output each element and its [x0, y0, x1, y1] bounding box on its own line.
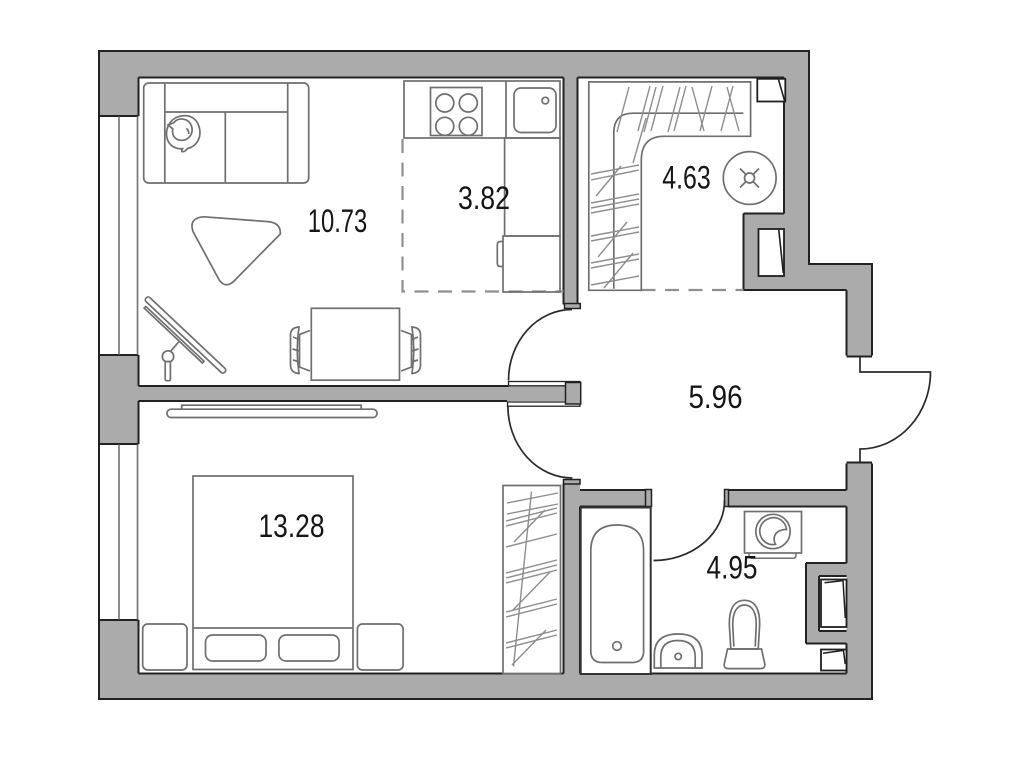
svg-text:4.63: 4.63: [662, 160, 711, 196]
svg-text:13.28: 13.28: [259, 508, 325, 544]
svg-text:4.95: 4.95: [707, 550, 758, 586]
svg-text:5.96: 5.96: [689, 379, 743, 415]
svg-text:10.73: 10.73: [308, 203, 368, 239]
svg-text:3.82: 3.82: [458, 180, 510, 216]
